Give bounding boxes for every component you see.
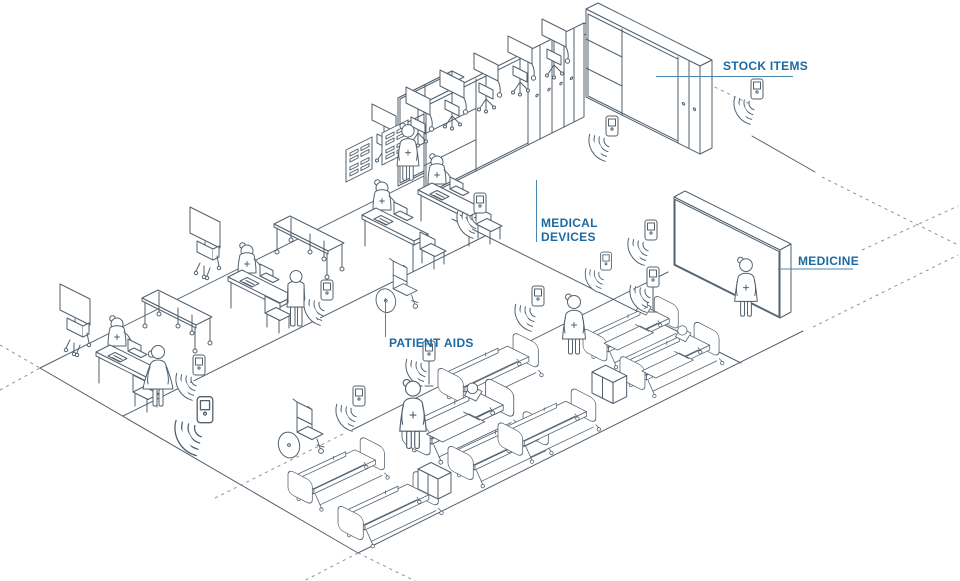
sensor-tag (585, 252, 611, 293)
wheelchair (374, 258, 418, 314)
ward-beds (276, 258, 724, 548)
exam-table (274, 216, 344, 279)
stock-shelf-wing-b (586, 3, 712, 154)
sensor-tag (589, 116, 618, 161)
sensor-tag (175, 397, 213, 456)
desk (362, 202, 428, 271)
label-medical-devices-line2: DEVICES (541, 230, 596, 244)
illustration-stage: STOCK ITEMS MEDICAL DEVICES MEDICINE PAT… (0, 0, 960, 581)
scene-artwork (60, 3, 791, 548)
label-medical-devices-line1: MEDICAL (541, 216, 598, 230)
monitor-cart (60, 284, 91, 357)
hospital-isometric-diagram: STOCK ITEMS MEDICAL DEVICES MEDICINE PAT… (0, 0, 960, 581)
clinician-seated (373, 180, 396, 210)
patient-standing (287, 271, 305, 327)
nurse-figure (563, 294, 586, 354)
xray-viewer-panel (346, 137, 372, 182)
sensor-tag (304, 280, 333, 325)
patient-chair (420, 232, 446, 269)
label-medicine: MEDICINE (798, 254, 859, 268)
label-patient-aids: PATIENT AIDS (389, 336, 474, 350)
desk (228, 264, 294, 333)
medicine-cabinet (674, 191, 791, 318)
sensor-tag (336, 386, 365, 431)
sensor-tag (734, 79, 763, 124)
clinician-seated (238, 243, 261, 273)
consultation-desks (60, 154, 502, 412)
monitor-cart (190, 207, 221, 280)
sensor-tag (628, 220, 657, 265)
sensor-tag (515, 286, 544, 331)
wheelchair (276, 399, 324, 460)
label-stock-items: STOCK ITEMS (723, 59, 808, 73)
exam-table (142, 290, 212, 353)
